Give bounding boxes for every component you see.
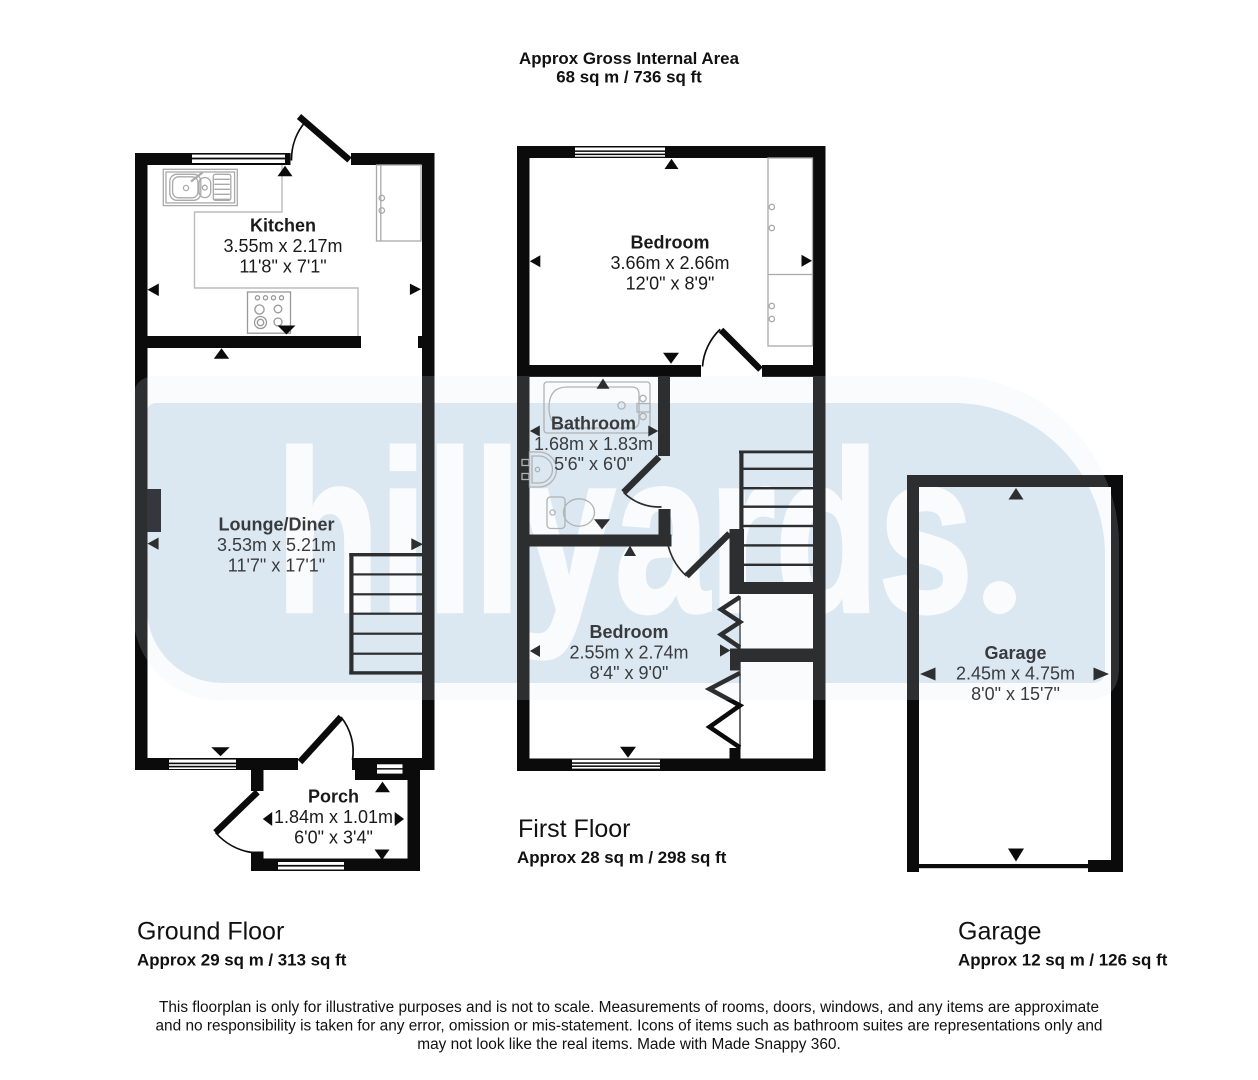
svg-text:Bedroom: Bedroom	[630, 233, 709, 253]
svg-text:This floorplan is only for ill: This floorplan is only for illustrative …	[159, 999, 1099, 1016]
svg-text:Ground Floor: Ground Floor	[137, 918, 284, 946]
svg-text:3.66m x 2.66m: 3.66m x 2.66m	[610, 253, 729, 273]
svg-text:68 sq m / 736 sq ft: 68 sq m / 736 sq ft	[556, 68, 702, 87]
svg-text:12'0" x 8'9": 12'0" x 8'9"	[626, 274, 715, 294]
svg-text:First Floor: First Floor	[518, 815, 631, 843]
svg-text:Approx 28 sq m / 298 sq ft: Approx 28 sq m / 298 sq ft	[517, 848, 727, 867]
svg-text:Approx Gross Internal Area: Approx Gross Internal Area	[519, 49, 740, 68]
svg-text:Approx 29 sq m / 313 sq ft: Approx 29 sq m / 313 sq ft	[137, 951, 347, 970]
svg-text:1.84m x 1.01m: 1.84m x 1.01m	[274, 807, 393, 827]
svg-text:Approx 12 sq m / 126 sq ft: Approx 12 sq m / 126 sq ft	[958, 951, 1168, 970]
svg-text:and no responsibility is taken: and no responsibility is taken for any e…	[156, 1018, 1103, 1035]
svg-text:6'0" x 3'4": 6'0" x 3'4"	[294, 827, 373, 847]
svg-text:may not look like the real ite: may not look like the real items. Made w…	[417, 1036, 840, 1053]
svg-text:11'8" x 7'1": 11'8" x 7'1"	[239, 256, 326, 276]
svg-text:3.55m x 2.17m: 3.55m x 2.17m	[223, 236, 342, 256]
svg-text:Porch: Porch	[308, 787, 359, 807]
svg-text:Kitchen: Kitchen	[250, 216, 316, 236]
svg-text:Garage: Garage	[958, 918, 1041, 946]
